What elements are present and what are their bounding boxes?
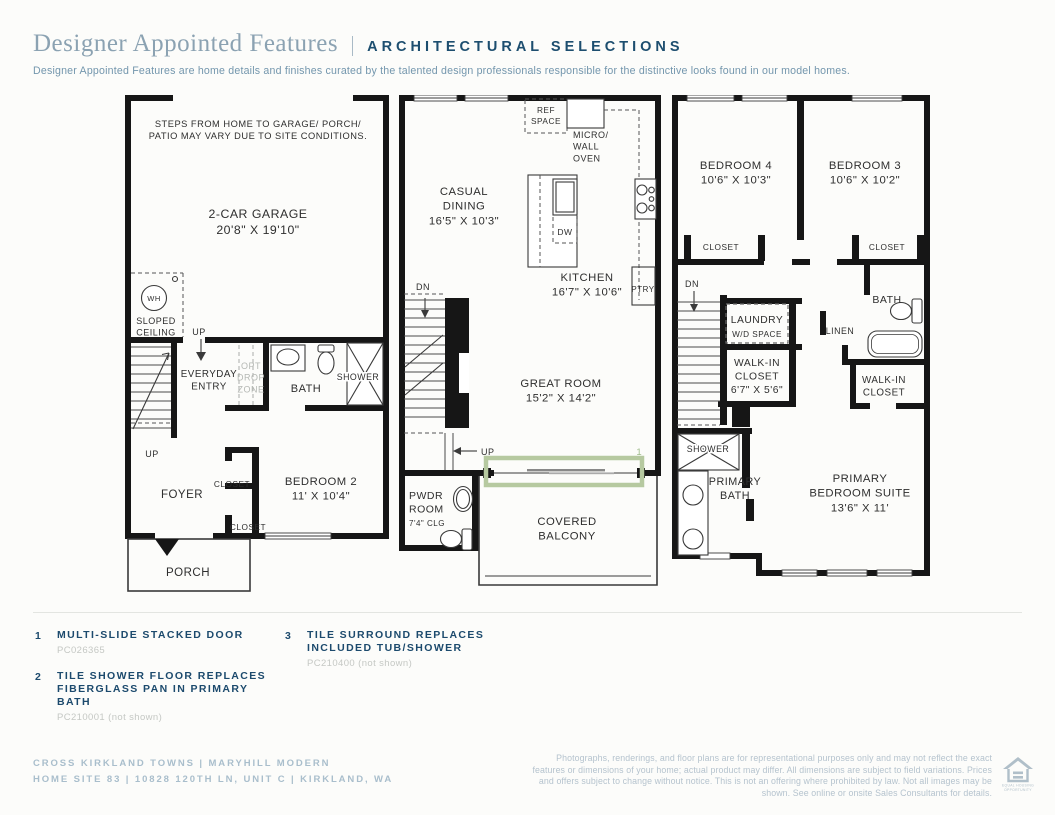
pwdr-toilet-bowl <box>441 531 462 548</box>
great-room-label: GREAT ROOM15'2" X 14'2" <box>520 378 601 405</box>
legend-divider <box>33 612 1022 613</box>
up-arrowhead <box>196 352 206 361</box>
site-note-label: STEPS FROM HOME TO GARAGE/ PORCH/PATIO M… <box>149 119 367 141</box>
porch-outline <box>128 539 250 591</box>
micro-wall-oven-label: MICRO/WALLOVEN <box>573 130 609 163</box>
bedroom3-label: BEDROOM 310'6" X 10'2" <box>829 160 901 187</box>
equal-housing-logo: EQUAL HOUSINGOPPORTUNITY <box>1002 756 1034 794</box>
stair-rail <box>445 433 453 470</box>
legend-code: PC026365 <box>57 645 244 656</box>
legend-label: TILE SHOWER FLOOR REPLACES FIBERGLASS PA… <box>57 670 280 709</box>
opt-drop-zone-label: OPTDROPZONE <box>237 361 265 394</box>
footer-project-info: CROSS KIRKLAND TOWNS | MARYHILL MODERN H… <box>33 756 393 788</box>
primary-suite-label: PRIMARYBEDROOM SUITE13'6" X 11' <box>809 473 910 514</box>
pwdr-room-label: PWDRROOM <box>409 490 444 516</box>
legend-item-1: 1 MULTI-SLIDE STACKED DOOR PC026365 <box>35 629 275 656</box>
ref-space-label: REFSPACE <box>531 105 561 126</box>
everyday-entry-label: EVERYDAYENTRY <box>181 369 237 393</box>
header-title-row: Designer Appointed Features ARCHITECTURA… <box>33 30 1023 58</box>
legend-number: 3 <box>285 629 307 669</box>
page-subtitle-caps: ARCHITECTURAL SELECTIONS <box>367 39 683 55</box>
toilet-tank <box>318 345 334 352</box>
stairs <box>131 347 171 428</box>
feature-1-marker: 1 <box>636 447 641 458</box>
sloped-ceiling-label: SLOPEDCEILING <box>136 316 176 338</box>
wall-oven-cabinet <box>567 99 604 128</box>
walkin-left-label: WALK-INCLOSET6'7" X 5'6" <box>731 358 783 396</box>
header-description: Designer Appointed Features are home det… <box>33 65 1023 77</box>
stacked-door-panel <box>527 469 605 471</box>
legend-number: 1 <box>35 629 57 656</box>
ceiling-marker <box>173 277 178 282</box>
primary-shower-label: SHOWER <box>687 444 730 454</box>
site-line: HOME SITE 83 | 10828 120TH LN, UNIT C | … <box>33 772 393 788</box>
stairs-direction-line <box>133 353 169 429</box>
designer-features-flyer: Designer Appointed Features ARCHITECTURA… <box>0 0 1055 815</box>
equal-housing-roof <box>1003 757 1033 769</box>
entry-door-marker <box>155 539 179 556</box>
walls <box>399 95 661 551</box>
legend-code: PC210001 (not shown) <box>57 712 280 723</box>
walkin-right-label: WALK-INCLOSET <box>862 375 906 399</box>
closet2-label: CLOSET <box>230 522 266 532</box>
up-label-garage: UP <box>192 327 206 337</box>
equal-bar <box>1013 772 1023 775</box>
hall-toilet-tank <box>912 299 922 323</box>
primary-bath-label: PRIMARYBATH <box>709 476 762 502</box>
pantry-label: PTRY <box>631 285 654 294</box>
casual-dining-label: CASUALDINING16'5" X 10'3" <box>429 186 499 227</box>
header: Designer Appointed Features ARCHITECTURA… <box>33 30 1023 77</box>
legend-label: TILE SURROUND REPLACES INCLUDED TUB/SHOW… <box>307 629 540 655</box>
page-title: Designer Appointed Features <box>33 30 338 58</box>
stair-rail-notch <box>459 353 469 393</box>
pwdr-ceiling-label: 7'4" CLG <box>409 519 445 528</box>
pwdr-toilet-tank <box>462 529 472 550</box>
kitchen-label: KITCHEN16'7" X 10'6" <box>552 272 622 299</box>
stairs <box>404 300 445 417</box>
bedroom4-label: BEDROOM 410'6" X 10'3" <box>700 160 772 187</box>
floor-plan-upper-level: BEDROOM 410'6" X 10'3" BEDROOM 310'6" X … <box>672 95 930 583</box>
closet-right-label: CLOSET <box>869 242 905 252</box>
linen-label: LINEN <box>826 326 854 336</box>
primary-vanity <box>678 471 708 555</box>
bedroom2-label: BEDROOM 211' X 10'4" <box>285 476 357 503</box>
stacked-door-panel <box>549 472 614 474</box>
water-heater-label: WH <box>147 294 161 303</box>
equal-housing-house <box>1009 769 1028 781</box>
legend-label: MULTI-SLIDE STACKED DOOR <box>57 629 244 642</box>
porch-label: PORCH <box>166 567 210 579</box>
cooktop <box>635 179 656 219</box>
wd-space-label: W/D SPACE <box>732 330 782 339</box>
community-line: CROSS KIRKLAND TOWNS | MARYHILL MODERN <box>33 756 393 772</box>
feature-1-highlight <box>486 458 642 485</box>
footer-disclaimer: Photographs, renderings, and floor plans… <box>528 753 992 799</box>
dishwasher-label: DW <box>557 227 572 237</box>
dn-arrowhead <box>421 310 429 318</box>
foyer-label: FOYER <box>161 489 203 501</box>
legend-number: 2 <box>35 670 57 723</box>
equal-housing-label: EQUAL HOUSINGOPPORTUNITY <box>1002 784 1034 792</box>
stairs <box>677 302 720 419</box>
legend-code: PC210400 (not shown) <box>307 658 540 669</box>
up-arrowhead <box>453 447 461 455</box>
up-label-foyer: UP <box>145 449 159 459</box>
stairs-direction-lines <box>405 335 443 395</box>
closet1-label: CLOSET <box>214 479 250 489</box>
garage-label: 2-CAR GARAGE20'8" X 19'10" <box>209 207 308 237</box>
island-sink <box>553 179 577 215</box>
title-divider <box>352 36 353 56</box>
toilet-bowl <box>318 352 334 374</box>
bath-label: BATH <box>291 383 322 395</box>
dn-label: DN <box>685 279 699 289</box>
legend-item-3: 3 TILE SURROUND REPLACES INCLUDED TUB/SH… <box>285 629 540 669</box>
covered-balcony-label: COVEREDBALCONY <box>537 516 596 543</box>
closet-left-label: CLOSET <box>703 242 739 252</box>
floor-plan-main-level: REFSPACE MICRO/WALLOVEN CASUALDINING16'5… <box>399 95 661 595</box>
laundry-label: LAUNDRY <box>731 315 784 326</box>
up-label: UP <box>481 447 495 457</box>
hall-bath-label: BATH <box>872 294 901 306</box>
dn-label: DN <box>416 282 430 292</box>
equal-bar <box>1013 776 1023 779</box>
legend-item-2: 2 TILE SHOWER FLOOR REPLACES FIBERGLASS … <box>35 670 280 723</box>
shower-label: SHOWER <box>337 372 380 382</box>
floor-plan-garage-level: STEPS FROM HOME TO GARAGE/ PORCH/PATIO M… <box>125 95 389 595</box>
